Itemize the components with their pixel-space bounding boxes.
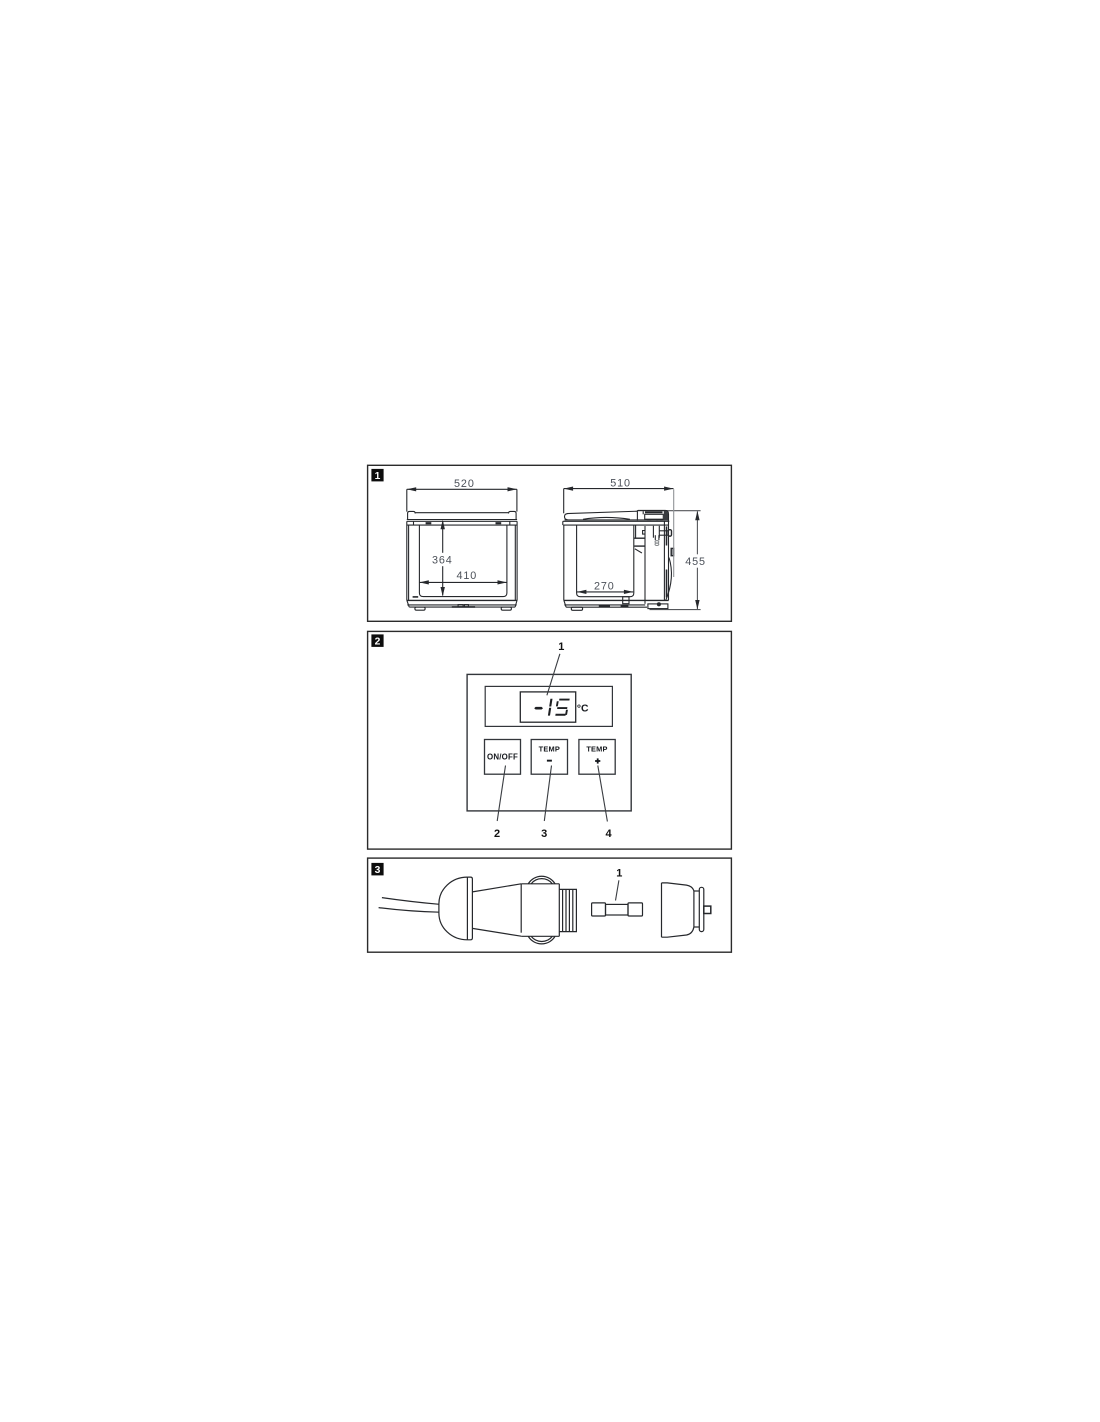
svg-text:3: 3	[541, 828, 547, 840]
svg-text:ON/OFF: ON/OFF	[487, 753, 518, 762]
svg-text:TEMP: TEMP	[539, 745, 560, 754]
svg-text:270: 270	[594, 580, 615, 592]
svg-text:TEMP: TEMP	[586, 745, 607, 754]
svg-text:°C: °C	[577, 704, 589, 715]
svg-text:455: 455	[685, 556, 706, 568]
svg-text:364: 364	[432, 555, 453, 567]
svg-text:520: 520	[454, 478, 475, 490]
svg-text:1: 1	[375, 471, 381, 482]
svg-text:1: 1	[558, 641, 564, 653]
svg-text:2: 2	[375, 636, 381, 647]
svg-text:4: 4	[605, 828, 612, 840]
svg-text:510: 510	[610, 477, 631, 489]
svg-text:2: 2	[494, 828, 500, 840]
svg-text:3: 3	[375, 865, 381, 876]
svg-text:1: 1	[616, 868, 622, 880]
svg-text:410: 410	[456, 570, 477, 582]
